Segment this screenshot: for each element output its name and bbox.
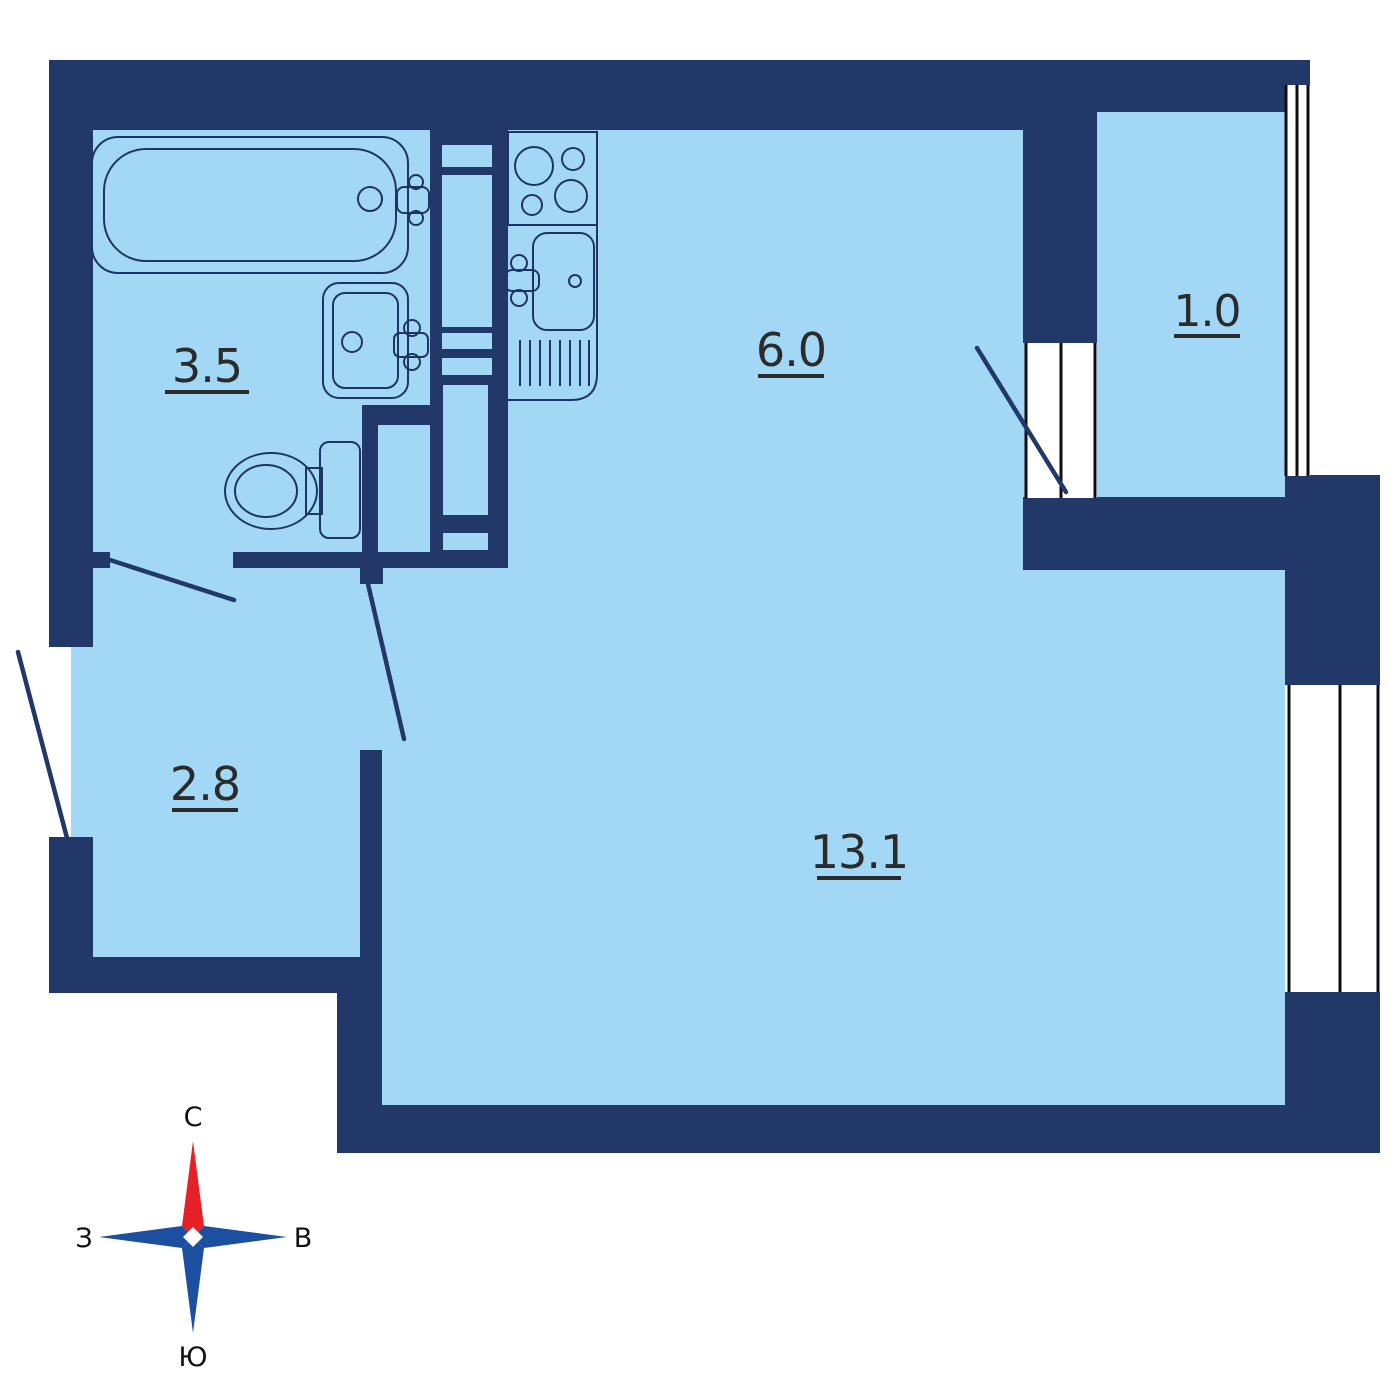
living-room-window [1285, 685, 1380, 992]
compass-east-arrow [193, 1226, 287, 1248]
wall-under-balcony [1023, 497, 1285, 570]
wall-balcony-left [1023, 110, 1097, 343]
kitchen-area-label: 6.0 [756, 323, 826, 377]
wall-bathroom-door-stub [90, 552, 110, 568]
entrance-door-swing [18, 652, 67, 838]
balcony-area-label: 1.0 [1174, 286, 1241, 337]
compass-east-label: В [294, 1223, 313, 1254]
compass-south-arrow [182, 1237, 204, 1333]
bathroom-area-label: 3.5 [172, 339, 242, 393]
compass-south-label: Ю [178, 1342, 207, 1373]
compass-north-label: С [184, 1102, 203, 1133]
hall-living-door-gap [360, 583, 382, 750]
ventilation-shaft [442, 145, 492, 550]
compass-rose: С Ю З В [75, 1102, 312, 1373]
entrance-door-notch [71, 647, 93, 837]
wall-right-bottom [1285, 992, 1380, 1153]
wall-living-bottom [337, 1105, 1380, 1153]
balcony-glazing [1285, 85, 1310, 476]
wall-hall-living-partition [360, 750, 382, 993]
compass-north-arrow [182, 1141, 204, 1237]
wall-toilet-nook-bar [378, 405, 438, 425]
wall-right-mid [1285, 475, 1380, 685]
wall-hallway-bottom [49, 957, 382, 993]
balcony-door-window [1025, 343, 1097, 498]
wall-door-stub [360, 568, 383, 584]
shaft-slot [442, 145, 492, 167]
shaft-slot [442, 358, 492, 375]
shaft-slot [443, 533, 488, 550]
floor-plan: 3.5 6.0 1.0 2.8 13.1 С Ю З В [0, 0, 1400, 1400]
wall-left-upper [49, 60, 93, 647]
living-area-label: 13.1 [810, 825, 908, 879]
hallway-area-label: 2.8 [170, 757, 240, 811]
wall-top-inner [49, 60, 1030, 130]
compass-west-arrow [99, 1226, 193, 1248]
shaft-slot [442, 175, 492, 327]
compass-west-label: З [75, 1223, 92, 1254]
shaft-slot [442, 333, 492, 349]
floor-plan-drawing: 3.5 6.0 1.0 2.8 13.1 С Ю З В [0, 0, 1400, 1400]
wall-toilet-partition [362, 405, 378, 568]
shaft-slot [443, 385, 488, 515]
